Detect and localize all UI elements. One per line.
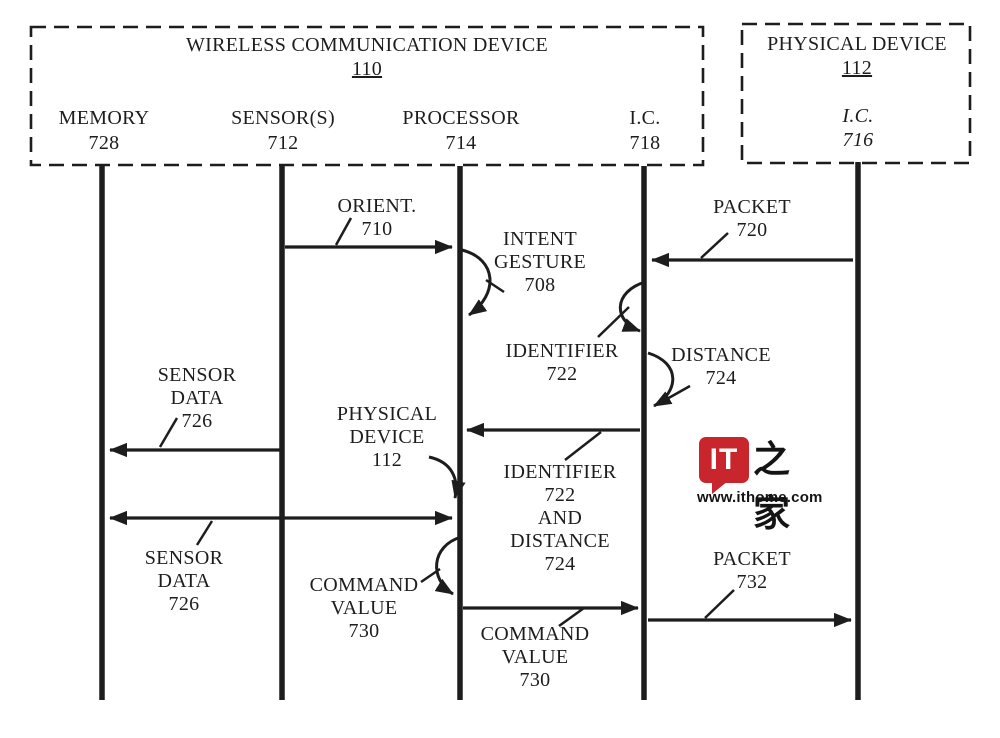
label-line: 722 (504, 484, 617, 507)
label-distance-724: DISTANCE 724 (671, 344, 771, 390)
label-line: PACKET (713, 548, 791, 571)
label-line: GESTURE (494, 251, 586, 274)
ithome-url-text: www.ithome.com (697, 489, 817, 506)
label-line: DEVICE (337, 426, 437, 449)
header-name: MEMORY (59, 106, 150, 131)
label-line: COMMAND (481, 623, 590, 646)
label-line: 724 (504, 553, 617, 576)
wireless-device-title: WIRELESS COMMUNICATION DEVICE 110 (186, 33, 548, 81)
label-sensor-data-726-top: SENSOR DATA 726 (158, 364, 237, 433)
label-line: INTENT (494, 228, 586, 251)
label-line: SENSOR (145, 547, 224, 570)
label-line: AND (504, 507, 617, 530)
label-line: 722 (506, 363, 619, 386)
label-line: 724 (671, 367, 771, 390)
physical-device-title: PHYSICAL DEVICE 112 (767, 32, 947, 80)
loop-intent-gesture-708 (462, 250, 490, 315)
label-line: PACKET (713, 196, 791, 219)
ithome-logo-icon: IT (699, 437, 749, 483)
label-intent-gesture-708: INTENT GESTURE 708 (494, 228, 586, 297)
leader-identifier-and-distance (565, 432, 601, 460)
header-ref: 728 (59, 131, 150, 156)
label-line: 726 (158, 410, 237, 433)
label-orient-710: ORIENT. 710 (338, 195, 417, 241)
label-identifier-and-distance: IDENTIFIER 722 AND DISTANCE 724 (504, 461, 617, 576)
label-line: 708 (494, 274, 586, 297)
label-packet-720: PACKET 720 (713, 196, 791, 242)
leader-packet-732 (705, 590, 734, 618)
patent-sequence-diagram: WIRELESS COMMUNICATION DEVICE 110 PHYSIC… (0, 0, 1000, 738)
label-command-value-730-left: COMMAND VALUE 730 (310, 574, 419, 643)
label-sensor-data-726-bottom: SENSOR DATA 726 (145, 547, 224, 616)
label-line: COMMAND (310, 574, 419, 597)
header-ic-718: I.C. 718 (629, 106, 660, 156)
label-line: DATA (158, 387, 237, 410)
label-line: PHYSICAL (337, 403, 437, 426)
label-line: IDENTIFIER (506, 340, 619, 363)
label-line: ORIENT. (338, 195, 417, 218)
label-line: 730 (310, 620, 419, 643)
header-name: I.C. (629, 106, 660, 131)
label-line: SENSOR (158, 364, 237, 387)
header-name: PROCESSOR (402, 106, 519, 131)
ic-716-ref: 716 (842, 128, 873, 152)
ithome-logo-text: IT (710, 443, 739, 477)
label-line: VALUE (481, 646, 590, 669)
wireless-device-name: WIRELESS COMMUNICATION DEVICE (186, 33, 548, 57)
header-name: SENSOR(S) (231, 106, 335, 131)
label-line: 730 (481, 669, 590, 692)
header-ref: 718 (629, 131, 660, 156)
ithome-cjk-text: 之家 (753, 432, 815, 486)
ic-716-header: I.C. 716 (842, 104, 873, 152)
label-command-value-730-bottom: COMMAND VALUE 730 (481, 623, 590, 692)
leader-sensor-data-bottom (197, 521, 212, 545)
label-identifier-722: IDENTIFIER 722 (506, 340, 619, 386)
header-memory-728: MEMORY 728 (59, 106, 150, 156)
label-packet-732: PACKET 732 (713, 548, 791, 594)
wireless-device-ref: 110 (186, 57, 548, 81)
physical-device-ref: 112 (767, 56, 947, 80)
label-line: 112 (337, 449, 437, 472)
label-line: DISTANCE (504, 530, 617, 553)
label-line: DISTANCE (671, 344, 771, 367)
label-line: 720 (713, 219, 791, 242)
header-ref: 712 (231, 131, 335, 156)
label-line: IDENTIFIER (504, 461, 617, 484)
label-line: 726 (145, 593, 224, 616)
label-line: 710 (338, 218, 417, 241)
physical-device-name: PHYSICAL DEVICE (767, 32, 947, 56)
label-line: 732 (713, 571, 791, 594)
label-physical-device-112: PHYSICAL DEVICE 112 (337, 403, 437, 472)
label-line: VALUE (310, 597, 419, 620)
ic-716-name: I.C. (842, 104, 873, 128)
header-ref: 714 (402, 131, 519, 156)
label-line: DATA (145, 570, 224, 593)
header-processor-714: PROCESSOR 714 (402, 106, 519, 156)
header-sensors-712: SENSOR(S) 712 (231, 106, 335, 156)
